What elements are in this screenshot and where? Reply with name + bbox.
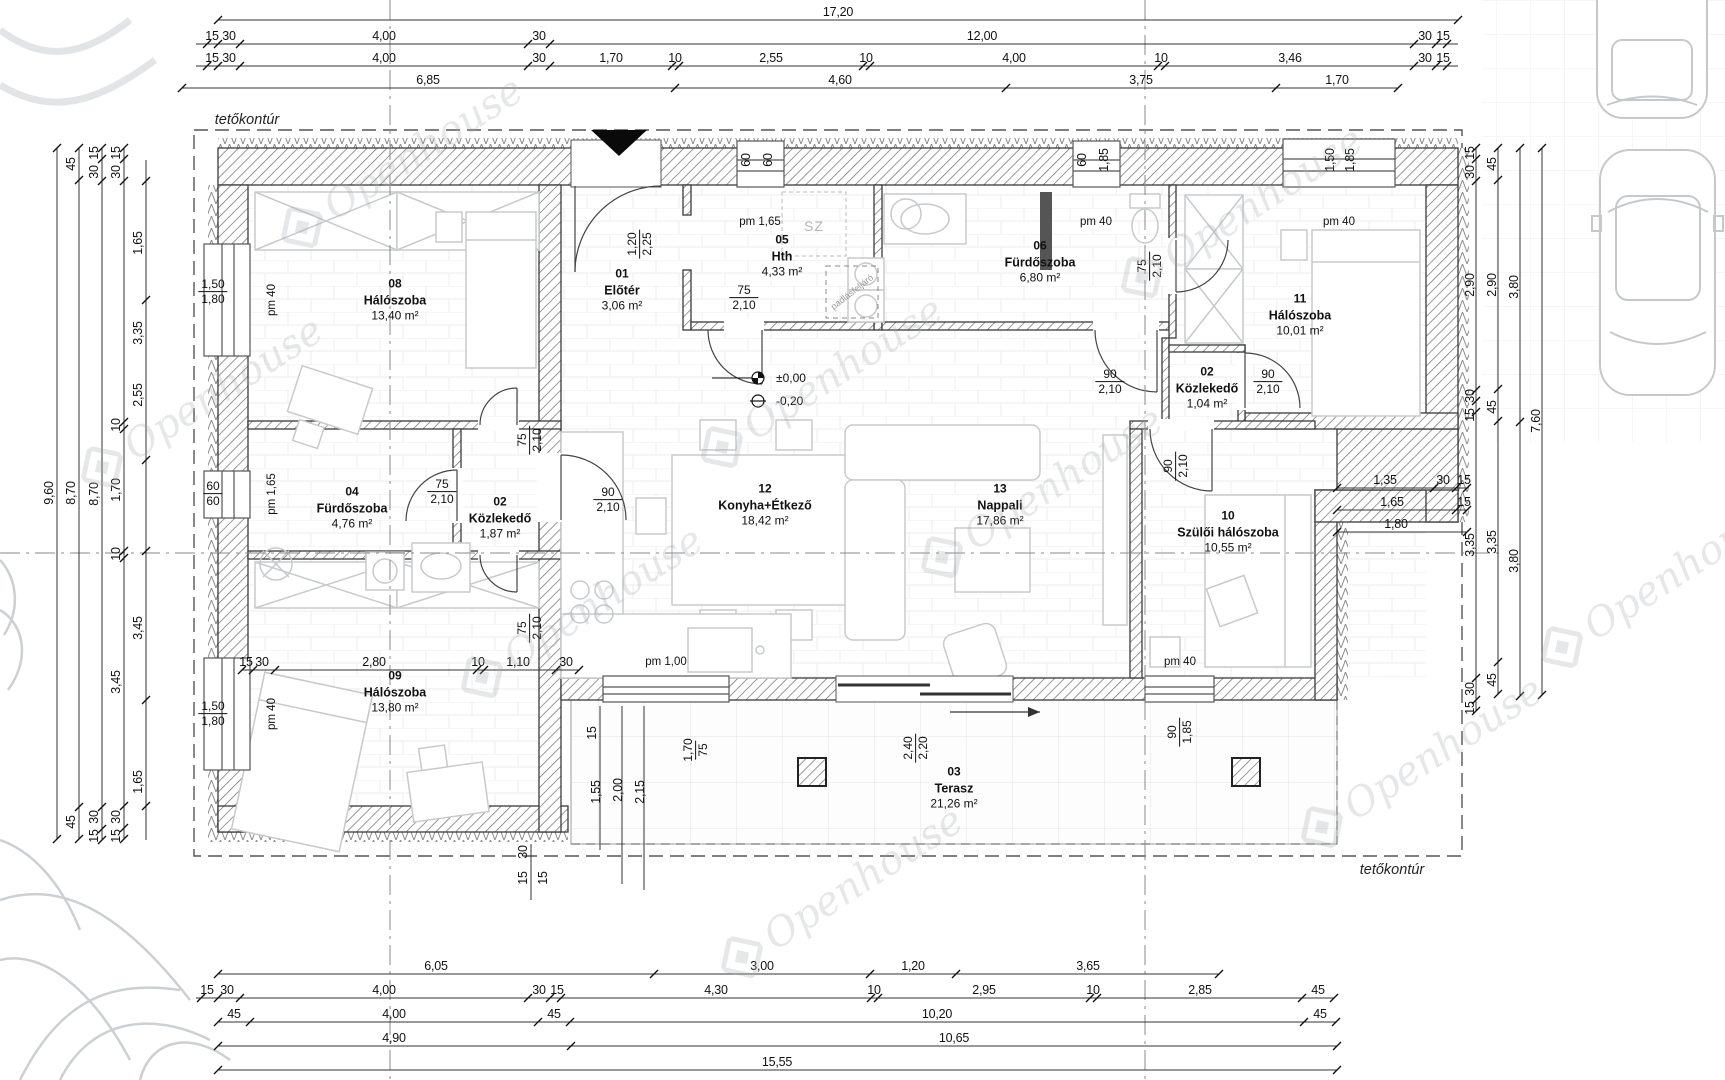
terrace-post xyxy=(1232,758,1260,786)
dim: 45 xyxy=(1486,673,1499,687)
dim: 15 xyxy=(88,146,101,160)
car-top xyxy=(1597,0,1707,118)
dim: 3,35 xyxy=(132,321,145,345)
dim: 30 xyxy=(222,52,236,65)
dim: 1,85 xyxy=(1098,148,1111,172)
floorplan-drawing: tetőkontúr tetőkontúr 17,20 15 30 4,00 3… xyxy=(0,0,1725,1080)
dim: 2,80 xyxy=(362,656,386,669)
dim: 17,20 xyxy=(823,6,853,19)
dim: 30 xyxy=(1436,474,1450,487)
window-size-label: 60 60 xyxy=(203,479,222,509)
door-size-label: 75 2,10 xyxy=(729,283,758,313)
dim: 1,50 xyxy=(201,277,224,291)
dim: 2,90 xyxy=(1486,273,1499,297)
dim: 4,30 xyxy=(704,984,728,997)
dim: 15 xyxy=(1464,408,1477,422)
room-number: 13 xyxy=(976,481,1023,497)
parapet-label: pm 1,65 xyxy=(266,473,278,515)
dim: 90 xyxy=(1261,367,1274,381)
dim: 9,60 xyxy=(43,481,56,505)
car-bottom xyxy=(1592,150,1723,395)
dim: 30 xyxy=(1464,389,1477,403)
roof-contour-label-bottom: tetőkontúr xyxy=(1360,862,1425,878)
room-name: Terasz xyxy=(930,780,977,796)
room-name: Nappali xyxy=(976,497,1023,513)
door-size-label: 75 2,10 xyxy=(515,425,545,454)
dim: 75 xyxy=(435,477,448,491)
room-area: 18,42 m² xyxy=(718,513,811,529)
dim: 2,55 xyxy=(132,383,145,407)
dim: 30 xyxy=(255,656,269,669)
dim: 15 xyxy=(1436,52,1450,65)
window-size-label: 1,50 1,80 xyxy=(198,277,227,307)
dim: 15 xyxy=(110,829,123,843)
dim: 1,10 xyxy=(506,656,530,669)
dim: 45 xyxy=(547,1008,561,1021)
room-name: Fürdőszoba xyxy=(317,500,388,516)
dim: 15 xyxy=(550,984,564,997)
door-size-label: 2,40 2,20 xyxy=(901,733,931,762)
dim: 15 xyxy=(200,984,214,997)
parapet-label: pm 40 xyxy=(1323,216,1355,228)
dim: 15 xyxy=(88,829,101,843)
dim: 30 xyxy=(1464,682,1477,696)
dim: 2,10 xyxy=(729,298,758,313)
room-area: 4,33 m² xyxy=(762,264,803,280)
dim: 2,00 xyxy=(612,778,625,802)
room-name: Előtér xyxy=(602,282,643,298)
dim: 1,70 xyxy=(599,52,623,65)
dim: 30 xyxy=(517,845,530,859)
dim: 30 xyxy=(88,165,101,179)
dim: 2,15 xyxy=(634,780,647,804)
dim: 1,50 xyxy=(201,699,224,713)
room-name: Hálószoba xyxy=(1269,307,1332,323)
dim: 3,80 xyxy=(1508,549,1521,573)
dim: 1,65 xyxy=(1380,496,1404,509)
dim: 60 xyxy=(740,153,753,167)
dim: 10 xyxy=(1086,984,1100,997)
dim: 45 xyxy=(1313,1008,1327,1021)
dim: 30 xyxy=(220,984,234,997)
room-area: 4,76 m² xyxy=(317,516,388,532)
room-number: 11 xyxy=(1269,291,1332,307)
dim: 6,05 xyxy=(424,960,448,973)
dim: 75 xyxy=(515,621,529,634)
room-name: Hálószoba xyxy=(364,292,427,308)
room-name: Hth xyxy=(762,248,803,264)
room-number: 09 xyxy=(364,668,427,684)
dim: 15 xyxy=(1457,496,1471,509)
dim: 30 xyxy=(88,810,101,824)
dim: 10 xyxy=(110,418,123,432)
room-number: 06 xyxy=(1005,238,1076,254)
room-label-furdoszoba-04: 04 Fürdőszoba 4,76 m² xyxy=(317,484,388,531)
dim: 15 xyxy=(110,146,123,160)
dim: 4,00 xyxy=(1002,52,1026,65)
dim: 2,10 xyxy=(1253,382,1282,397)
room-area: 13,80 m² xyxy=(364,700,427,716)
dim: 30 xyxy=(222,30,236,43)
dim: 2,90 xyxy=(1464,273,1477,297)
dim: 4,00 xyxy=(372,30,396,43)
dim: 3,75 xyxy=(1129,74,1153,87)
dim: 75 xyxy=(737,283,750,297)
dim: 1,70 xyxy=(681,738,695,761)
room-number: 04 xyxy=(317,484,388,500)
dim: 10 xyxy=(859,52,873,65)
level-minus-label: -0,20 xyxy=(776,394,803,408)
dim: 2,10 xyxy=(530,613,545,642)
room-area: 21,26 m² xyxy=(930,796,977,812)
dim: 2,20 xyxy=(916,733,931,762)
dim: 1,55 xyxy=(590,780,603,804)
dim: 4,60 xyxy=(828,74,852,87)
window-size-label: 1,50 1,80 xyxy=(198,699,227,729)
dim: 45 xyxy=(227,1008,241,1021)
dim: 8,70 xyxy=(65,481,78,505)
dim: 3,45 xyxy=(110,670,123,694)
dim: 30 xyxy=(1464,165,1477,179)
dim: 4,00 xyxy=(372,52,396,65)
dim: 45 xyxy=(1311,984,1325,997)
door-size-label: 90 2,10 xyxy=(1161,451,1191,480)
dim: 10,65 xyxy=(939,1032,969,1045)
dim: 15 xyxy=(517,871,530,885)
dim: 75 xyxy=(1135,259,1149,272)
dim: 1,80 xyxy=(1384,518,1408,531)
dim: 15 xyxy=(205,30,219,43)
room-area: 1,04 m² xyxy=(1176,396,1239,412)
dim: 3,35 xyxy=(1486,530,1499,554)
closet-label: SZ xyxy=(804,218,824,234)
dim: 10,20 xyxy=(922,1008,952,1021)
room-area: 1,87 m² xyxy=(469,526,532,542)
roof-contour-label-top: tetőkontúr xyxy=(215,112,280,128)
dim: 45 xyxy=(65,157,78,171)
dim: 60 xyxy=(762,153,775,167)
parapet-label: pm 40 xyxy=(266,698,278,730)
door-size-label: 90 2,10 xyxy=(593,485,622,515)
dim: 30 xyxy=(1418,52,1432,65)
dim: 3,46 xyxy=(1278,52,1302,65)
dim: 2,85 xyxy=(1188,984,1212,997)
dim: 1,65 xyxy=(132,231,145,255)
dim: 1,65 xyxy=(132,770,145,794)
dim: 1,35 xyxy=(1373,474,1397,487)
dim: 75 xyxy=(696,740,711,759)
room-name: Közlekedő xyxy=(469,510,532,526)
room-label-eloter-01: 01 Előtér 3,06 m² xyxy=(602,266,643,313)
room-number: 02 xyxy=(1176,364,1239,380)
dim: 15,55 xyxy=(762,1056,792,1069)
parapet-label: pm 1,00 xyxy=(645,656,687,668)
dim: 10 xyxy=(867,984,881,997)
dim: 15 xyxy=(1464,701,1477,715)
room-number: 05 xyxy=(762,232,803,248)
dim: 4,00 xyxy=(372,984,396,997)
shrub-sketch xyxy=(0,20,155,102)
dim: 4,00 xyxy=(382,1008,406,1021)
dim: 1,20 xyxy=(625,232,639,255)
dim: 7,60 xyxy=(1530,409,1543,433)
dim: 75 xyxy=(515,433,529,446)
dim: 15 xyxy=(1464,146,1477,160)
terrace-post xyxy=(798,758,826,786)
dim: 15 xyxy=(1457,474,1471,487)
dim: 1,70 xyxy=(1325,74,1349,87)
door-size-label: 75 2,10 xyxy=(515,613,545,642)
dim: 10 xyxy=(471,656,485,669)
door-size-label: 1,20 2,25 xyxy=(625,229,655,258)
dim: 1,85 xyxy=(1180,717,1195,746)
room-number: 10 xyxy=(1177,508,1278,524)
room-label-haloszoba-08: 08 Hálószoba 13,40 m² xyxy=(364,276,427,323)
dim: 2,40 xyxy=(901,736,915,759)
room-area: 6,80 m² xyxy=(1005,270,1076,286)
room-label-kozlekedo-02b: 02 Közlekedő 1,87 m² xyxy=(469,494,532,541)
door-size-label: 90 2,10 xyxy=(1253,367,1282,397)
dim: 2,10 xyxy=(593,500,622,515)
room-name: Fürdőszoba xyxy=(1005,254,1076,270)
room-label-terasz-03: 03 Terasz 21,26 m² xyxy=(930,764,977,811)
dim: 2,10 xyxy=(530,425,545,454)
dim: 2,55 xyxy=(759,52,783,65)
dim: 1,85 xyxy=(1344,148,1357,172)
room-number: 08 xyxy=(364,276,427,292)
dim: 15 xyxy=(537,871,550,885)
dim: 1,20 xyxy=(901,960,925,973)
dim: 2,95 xyxy=(972,984,996,997)
dim: 3,35 xyxy=(1464,533,1477,557)
dim: 15 xyxy=(239,656,253,669)
dim: 30 xyxy=(532,30,546,43)
room-label-haloszoba-09: 09 Hálószoba 13,80 m² xyxy=(364,668,427,715)
room-label-nappali-13: 13 Nappali 17,86 m² xyxy=(976,481,1023,528)
parapet-label: pm 40 xyxy=(266,284,278,316)
room-number: 12 xyxy=(718,481,811,497)
room-area: 10,55 m² xyxy=(1177,540,1278,556)
door-size-label: 90 2,10 xyxy=(1095,367,1124,397)
dim: 30 xyxy=(559,656,573,669)
dim: 90 xyxy=(1103,367,1116,381)
room-name: Konyha+Étkező xyxy=(718,497,811,513)
dim: 30 xyxy=(110,165,123,179)
room-label-furdoszoba-06: 06 Fürdőszoba 6,80 m² xyxy=(1005,238,1076,285)
dim: 60 xyxy=(1076,153,1089,167)
dim: 2,25 xyxy=(640,229,655,258)
room-label-szuloi-10: 10 Szülői hálószoba 10,55 m² xyxy=(1177,508,1278,555)
room-name: Hálószoba xyxy=(364,684,427,700)
door-size-label: 75 2,10 xyxy=(427,477,456,507)
door-size-label: 75 2,10 xyxy=(1135,251,1165,280)
dim: 1,50 xyxy=(1324,148,1337,172)
room-number: 02 xyxy=(469,494,532,510)
parapet-label: pm 1,65 xyxy=(739,216,781,228)
dim: 4,90 xyxy=(382,1032,406,1045)
dim: 15 xyxy=(205,52,219,65)
dim: 3,45 xyxy=(132,616,145,640)
room-label-hth-05: 05 Hth 4,33 m² xyxy=(762,232,803,279)
dim: 60 xyxy=(206,479,219,493)
room-name: Közlekedő xyxy=(1176,380,1239,396)
room-area: 17,86 m² xyxy=(976,513,1023,529)
dim: 8,70 xyxy=(88,482,101,506)
dim: 1,70 xyxy=(110,478,123,502)
dim: 30 xyxy=(532,52,546,65)
dim: 10 xyxy=(668,52,682,65)
room-area: 13,40 m² xyxy=(364,308,427,324)
dim: 10 xyxy=(110,547,123,561)
window-size-label: 1,70 75 xyxy=(681,738,711,761)
dim: 10 xyxy=(1154,52,1168,65)
dim: 30 xyxy=(1418,30,1432,43)
dim: 60 xyxy=(203,494,222,509)
dim: 1,80 xyxy=(198,714,227,729)
level-zero-label: ±0,00 xyxy=(776,371,806,385)
dim: 2,10 xyxy=(1176,451,1191,480)
dim: 30 xyxy=(532,984,546,997)
room-number: 01 xyxy=(602,266,643,282)
dim: 90 xyxy=(1165,725,1179,738)
room-number: 03 xyxy=(930,764,977,780)
dim: 3,00 xyxy=(750,960,774,973)
dim: 90 xyxy=(601,485,614,499)
dim: 2,10 xyxy=(427,492,456,507)
parapet-label: pm 40 xyxy=(1080,216,1112,228)
room-name: Szülői hálószoba xyxy=(1177,524,1278,540)
dim: 45 xyxy=(65,815,78,829)
dim: 15 xyxy=(1436,30,1450,43)
dim: 6,85 xyxy=(416,74,440,87)
room-area: 3,06 m² xyxy=(602,298,643,314)
room-label-kozlekedo-02a: 02 Közlekedő 1,04 m² xyxy=(1176,364,1239,411)
room-label-konyha-12: 12 Konyha+Étkező 18,42 m² xyxy=(718,481,811,528)
dim: 15 xyxy=(586,726,599,740)
dim: 2,10 xyxy=(1095,382,1124,397)
dim: 1,80 xyxy=(198,292,227,307)
room-area: 10,01 m² xyxy=(1269,323,1332,339)
dim: 3,65 xyxy=(1076,960,1100,973)
parapet-label: pm 40 xyxy=(1164,656,1196,668)
dim: 12,00 xyxy=(967,30,997,43)
dim: 30 xyxy=(110,810,123,824)
dim: 2,10 xyxy=(1150,251,1165,280)
window-size-label: 90 1,85 xyxy=(1165,717,1195,746)
dim: 45 xyxy=(1486,157,1499,171)
dim: 3,80 xyxy=(1508,275,1521,299)
dim: 90 xyxy=(1161,459,1175,472)
dim: 45 xyxy=(1486,400,1499,414)
room-label-haloszoba-11: 11 Hálószoba 10,01 m² xyxy=(1269,291,1332,338)
